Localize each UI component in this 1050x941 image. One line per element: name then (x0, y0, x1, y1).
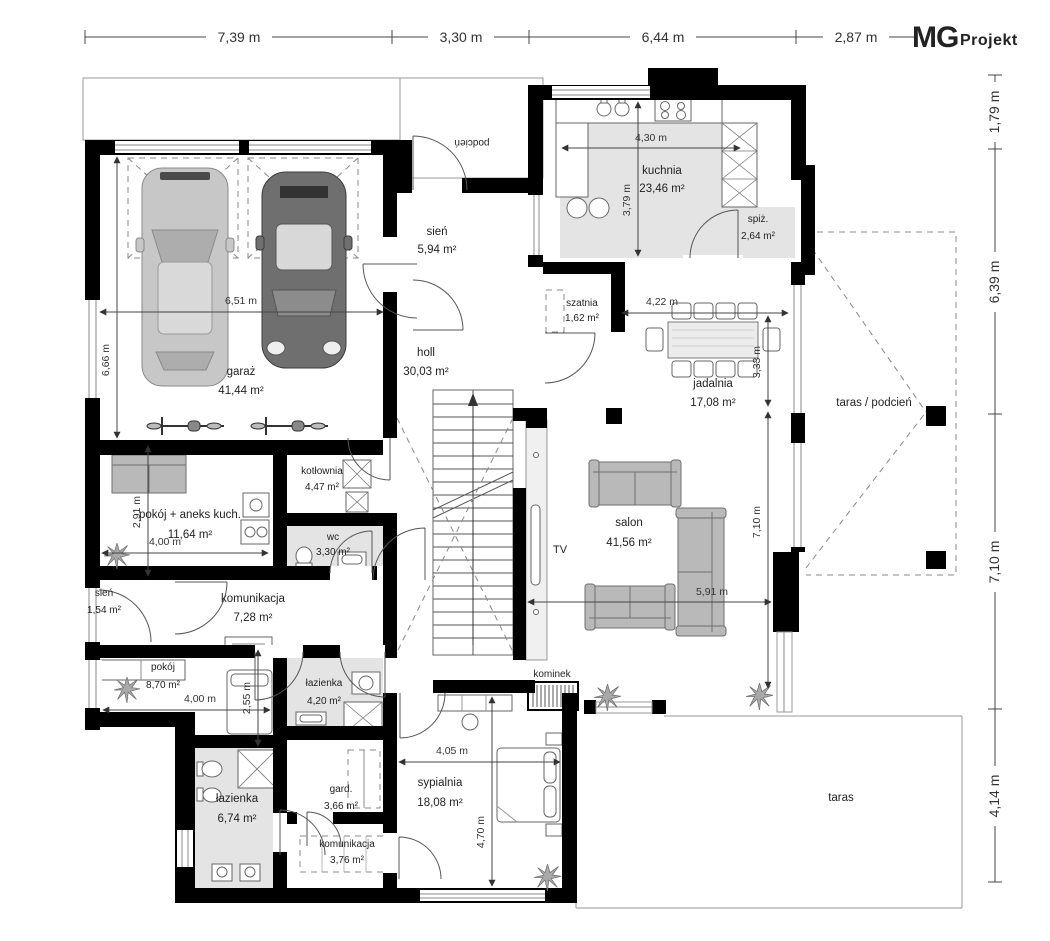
label-komunikacja1-area: 7,28 m² (234, 612, 273, 624)
dim-kitchen-h: 3,79 m (621, 184, 633, 216)
dim-dining-h: 3,33 m (751, 346, 763, 378)
dim-sypialnia-h: 4,70 m (475, 816, 487, 848)
label-sien1-name: sień (426, 226, 447, 238)
car-dark (256, 172, 352, 368)
dim-salon-w: 5,91 m (696, 586, 728, 598)
label-sien2-area: 1,54 m² (87, 605, 122, 616)
dim-right-3: 7,10 m (986, 541, 1002, 584)
label-tv: TV (553, 544, 568, 556)
garage-door-2 (249, 141, 371, 153)
garage-door-1 (115, 141, 239, 153)
dim-pokoj-w: 4,00 m (184, 693, 216, 705)
label-sien2-name: sień (95, 588, 113, 599)
label-kotlownia-area: 4,47 m² (305, 482, 340, 493)
label-komunikacja1-name: komunikacja (221, 593, 286, 605)
tv-icon (531, 505, 540, 585)
label-garaz-name: garaż (227, 366, 256, 378)
floor-plan-page: 6,51 m 6,66 m 4,30 m 3,79 m 4,22 m 3,33 … (0, 0, 1050, 941)
label-jadalnia-area: 17,08 m² (690, 397, 736, 409)
dim-sypialnia-w: 4,05 m (436, 745, 468, 757)
dim-right-2: 6,39 m (986, 261, 1002, 304)
logo-mg-text: MG (912, 21, 958, 54)
kotlownia-boiler (343, 460, 371, 512)
tv-wall (526, 420, 547, 660)
label-holl-name: holl (417, 347, 435, 359)
gard-wardrobe (348, 750, 380, 808)
car-light (136, 168, 234, 386)
label-wc-area: 3,30 m² (316, 547, 351, 558)
floor-plan-drawing: 6,51 m 6,66 m 4,30 m 3,79 m 4,22 m 3,33 … (0, 0, 1050, 941)
label-salon-name: salon (615, 517, 643, 529)
label-podcien: podcień (454, 137, 489, 148)
label-sypialnia-area: 18,08 m² (417, 797, 463, 809)
staircase (397, 390, 513, 655)
label-kominek: kominek (533, 669, 571, 680)
label-garaz-area: 41,44 m² (218, 385, 264, 397)
label-pokoj-area: 8,70 m² (146, 680, 181, 691)
dim-kitchen-w: 4,30 m (635, 132, 667, 144)
label-kuchnia-area: 23,46 m² (639, 183, 685, 195)
bedroom-furniture (438, 695, 562, 836)
label-lazienka2-area: 6,74 m² (218, 813, 257, 825)
dim-salon-h: 7,10 m (751, 506, 763, 538)
label-lazienka1-name: łazienka (306, 678, 343, 689)
dim-right-1: 1,79 m (986, 91, 1002, 134)
label-lazienka1-area: 4,20 m² (307, 696, 342, 707)
label-kotlownia-name: kotłownia (301, 466, 343, 477)
logo-projekt-text: Projekt (960, 32, 1018, 49)
bike-icons (147, 417, 328, 435)
mg-projekt-logo: MG Projekt (912, 21, 1018, 54)
dim-top-2: 3,30 m (440, 29, 483, 45)
label-aneks-area: 11,64 m² (168, 529, 213, 541)
label-sypialnia-name: sypialnia (418, 777, 463, 789)
label-aneks-name: pokój + aneks kuch. (139, 509, 241, 521)
label-komunikacja2-name: komunikacja (319, 839, 375, 850)
stove-icon (655, 99, 691, 121)
label-pokoj-name: pokój (151, 662, 175, 673)
label-holl-area: 30,03 m² (403, 366, 449, 378)
label-taras: taras (828, 792, 854, 804)
dim-garage-h: 6,66 m (100, 344, 112, 376)
wardrobe-szatnia (546, 290, 564, 332)
label-komunikacja2-area: 3,76 m² (330, 855, 365, 866)
label-szatnia-name: szatnia (566, 298, 598, 309)
label-wc-name: wc (326, 532, 339, 543)
label-sien1-area: 5,94 m² (418, 244, 457, 256)
label-kuchnia-name: kuchnia (642, 165, 682, 177)
label-gard-name: gard. (330, 784, 353, 795)
label-spiz-area: 2,64 m² (741, 231, 776, 242)
dim-garage-w: 6,51 m (225, 295, 257, 307)
label-lazienka2-name: łazienka (216, 793, 259, 805)
dim-right-4: 4,14 m (986, 775, 1002, 818)
label-jadalnia-name: jadalnia (692, 378, 733, 390)
label-gard-area: 3,66 m² (324, 801, 359, 812)
label-szatnia-area: 1,62 m² (565, 313, 600, 324)
label-spiz-name: spiż. (748, 214, 769, 225)
dim-top-3: 6,44 m (642, 29, 685, 45)
dim-top-4: 2,87 m (835, 29, 878, 45)
label-salon-area: 41,56 m² (606, 537, 652, 549)
dim-pokoj-h: 2,55 m (241, 682, 253, 714)
dim-dining-w: 4,22 m (646, 296, 678, 308)
dim-top-1: 7,39 m (218, 29, 261, 45)
label-taras-podcien: taras / podcień (836, 397, 911, 409)
